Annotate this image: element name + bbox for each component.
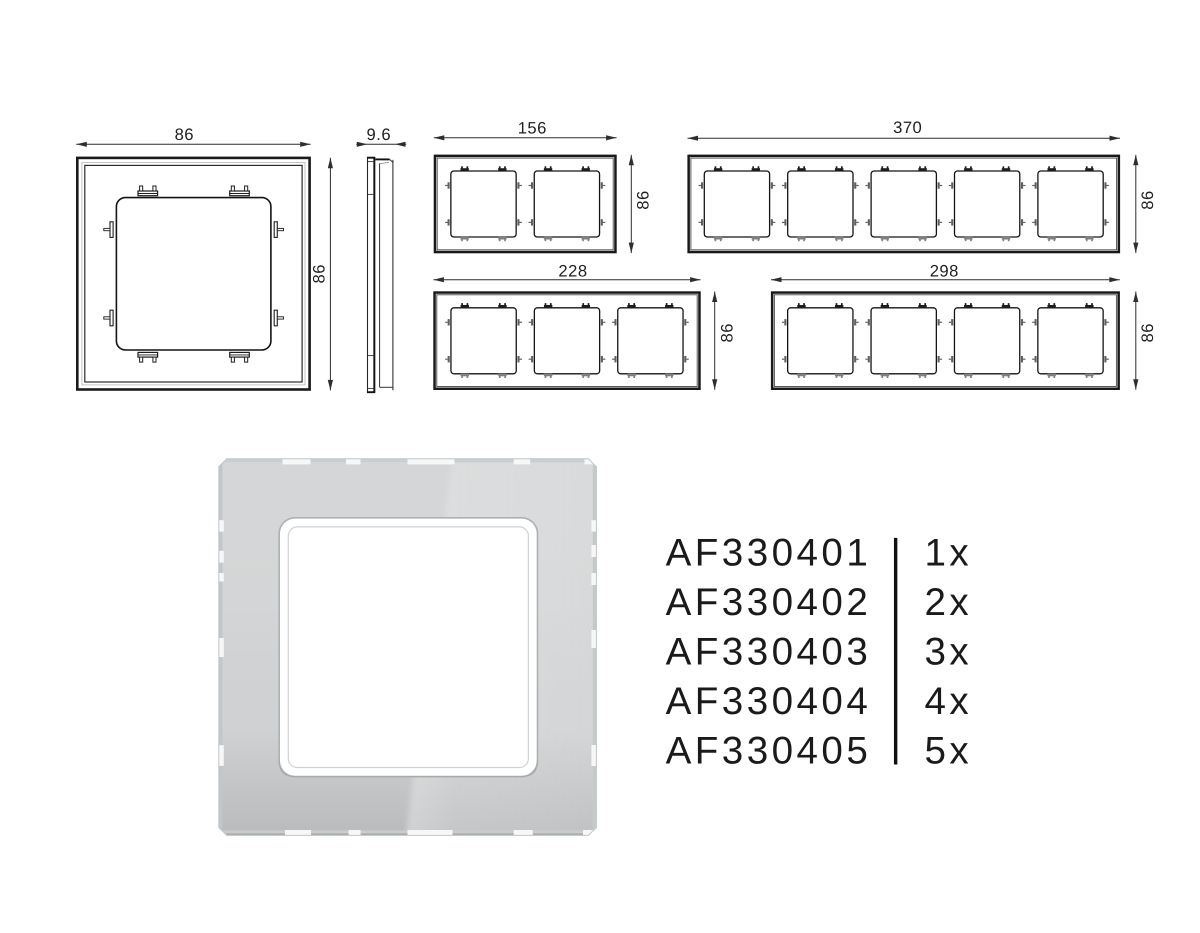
svg-text:86: 86 xyxy=(718,323,737,342)
svg-text:370: 370 xyxy=(893,118,922,137)
svg-text:86: 86 xyxy=(1138,190,1157,209)
svg-text:AF330404: AF330404 xyxy=(666,680,872,723)
svg-text:AF330402: AF330402 xyxy=(666,581,872,624)
svg-text:5x: 5x xyxy=(925,729,973,772)
svg-text:AF330403: AF330403 xyxy=(666,630,872,673)
svg-text:4x: 4x xyxy=(925,680,973,723)
svg-text:2x: 2x xyxy=(925,581,973,624)
svg-text:156: 156 xyxy=(518,118,547,137)
svg-text:3x: 3x xyxy=(925,630,973,673)
svg-text:86: 86 xyxy=(175,125,194,144)
svg-text:1x: 1x xyxy=(925,531,973,574)
svg-text:86: 86 xyxy=(634,190,653,209)
svg-text:228: 228 xyxy=(558,261,587,280)
svg-text:AF330401: AF330401 xyxy=(666,531,872,574)
svg-text:86: 86 xyxy=(310,264,329,283)
svg-text:9.6: 9.6 xyxy=(367,125,392,144)
svg-text:86: 86 xyxy=(1138,323,1157,342)
svg-text:AF330405: AF330405 xyxy=(666,729,872,772)
svg-text:298: 298 xyxy=(930,261,959,280)
